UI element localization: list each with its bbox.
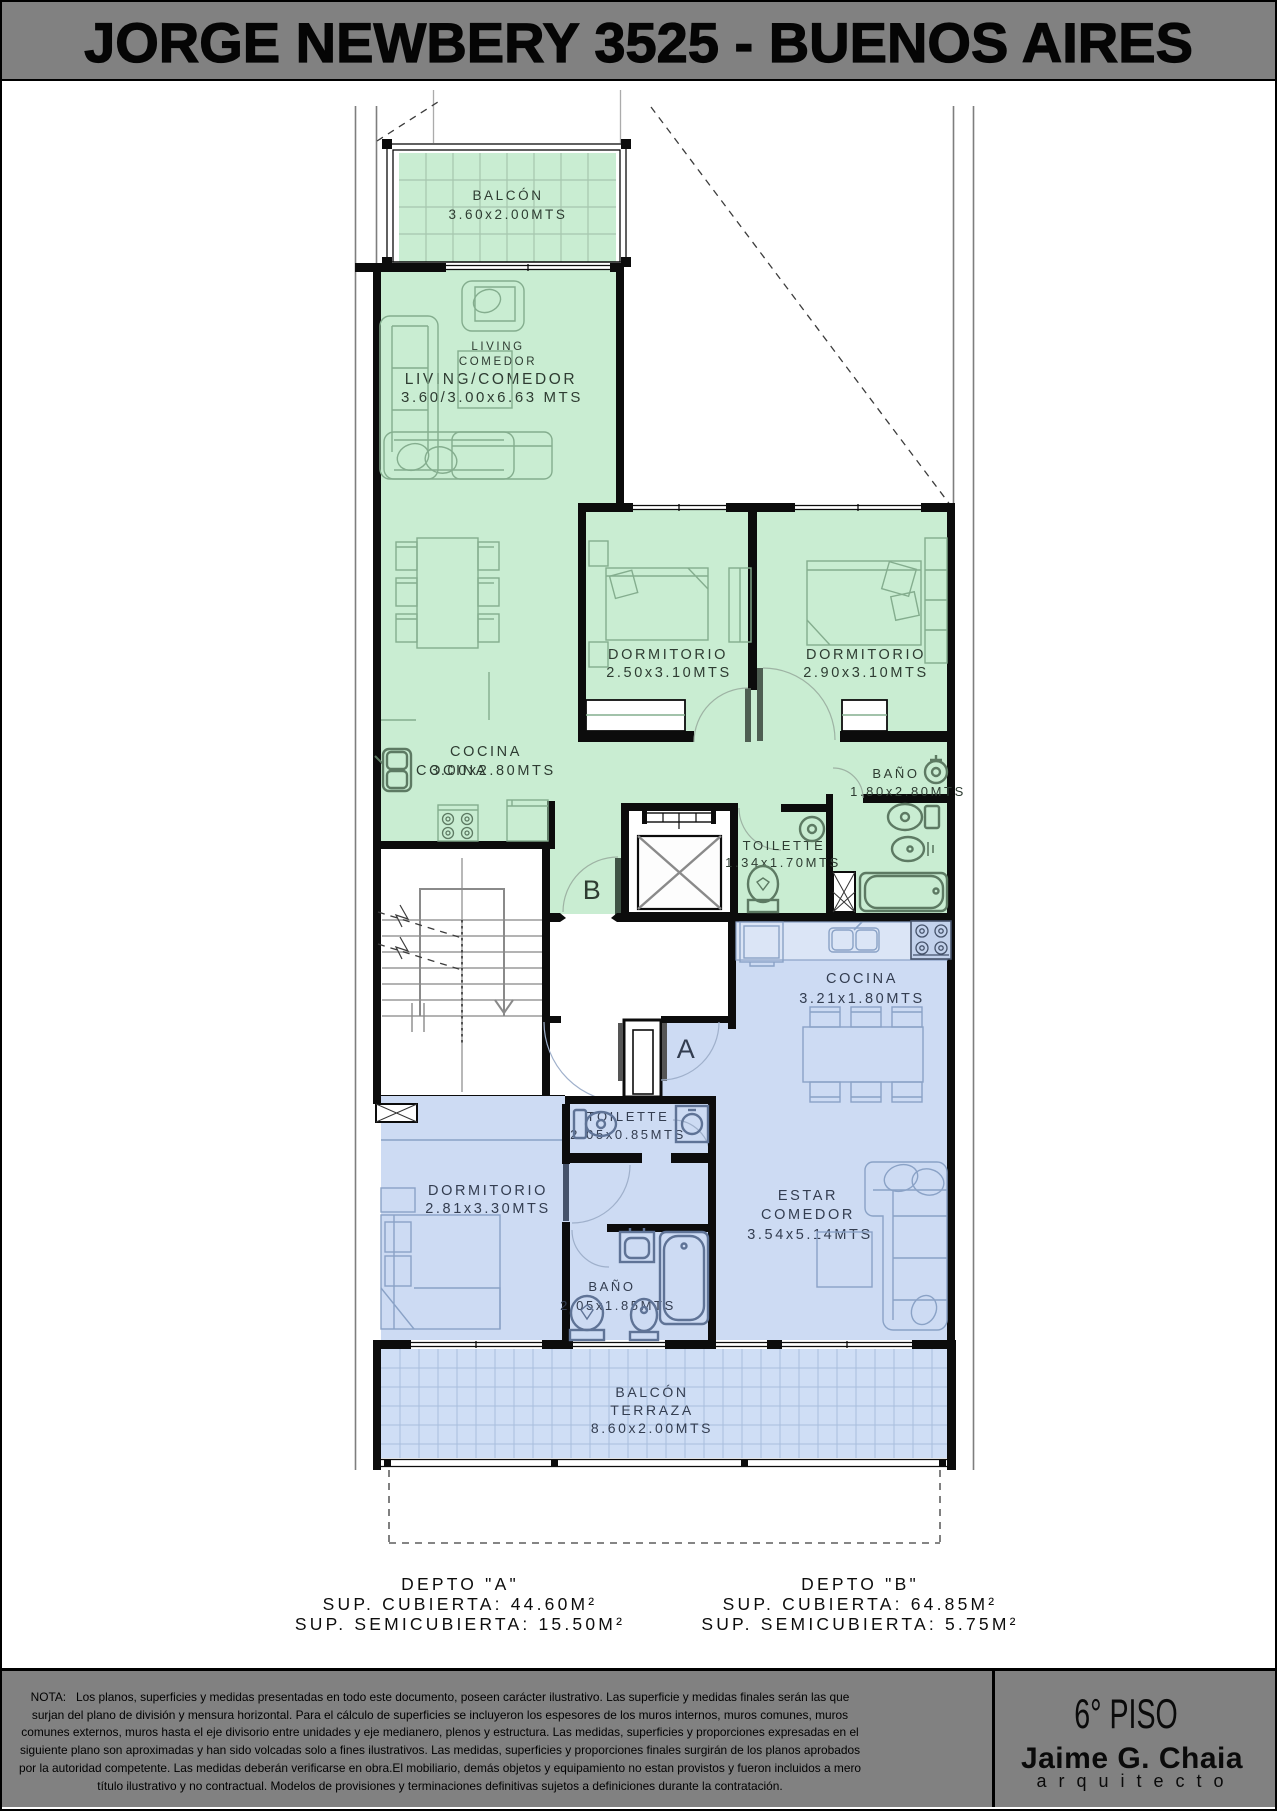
svg-text:BALCÓN: BALCÓN: [472, 188, 543, 203]
svg-text:3.60x2.00MTS: 3.60x2.00MTS: [449, 207, 568, 222]
svg-text:8.60x2.00MTS: 8.60x2.00MTS: [591, 1420, 713, 1436]
svg-text:COMEDOR: COMEDOR: [761, 1207, 855, 1223]
svg-text:2.50x3.10MTS: 2.50x3.10MTS: [606, 665, 732, 681]
svg-text:COMEDOR: COMEDOR: [459, 356, 537, 368]
svg-text:3.21x1.80MTS: 3.21x1.80MTS: [799, 991, 925, 1007]
svg-text:2.90x3.10MTS: 2.90x3.10MTS: [803, 665, 929, 681]
svg-text:DORMITORIO: DORMITORIO: [428, 1183, 548, 1199]
svg-text:TERRAZA: TERRAZA: [610, 1402, 694, 1418]
svg-text:1.34x1.70MTS: 1.34x1.70MTS: [725, 855, 841, 870]
svg-text:BALCÓN: BALCÓN: [615, 1384, 688, 1400]
svg-text:ESTAR: ESTAR: [778, 1188, 838, 1204]
svg-text:BAÑO: BAÑO: [588, 1279, 635, 1294]
svg-text:B: B: [583, 875, 604, 905]
svg-text:DORMITORIO: DORMITORIO: [608, 647, 728, 663]
svg-text:COCINA: COCINA: [826, 971, 898, 987]
svg-text:DORMITORIO: DORMITORIO: [806, 647, 926, 663]
svg-text:COCINA: COCINA: [416, 763, 488, 779]
svg-text:COCINA: COCINA: [450, 744, 522, 760]
svg-text:A: A: [677, 1034, 698, 1064]
svg-text:3.54x5.14MTS: 3.54x5.14MTS: [747, 1227, 873, 1243]
svg-text:LIVING/COMEDOR: LIVING/COMEDOR: [405, 371, 577, 388]
svg-text:1.80x2.80MTS: 1.80x2.80MTS: [850, 784, 966, 799]
svg-text:BAÑO: BAÑO: [872, 766, 919, 781]
